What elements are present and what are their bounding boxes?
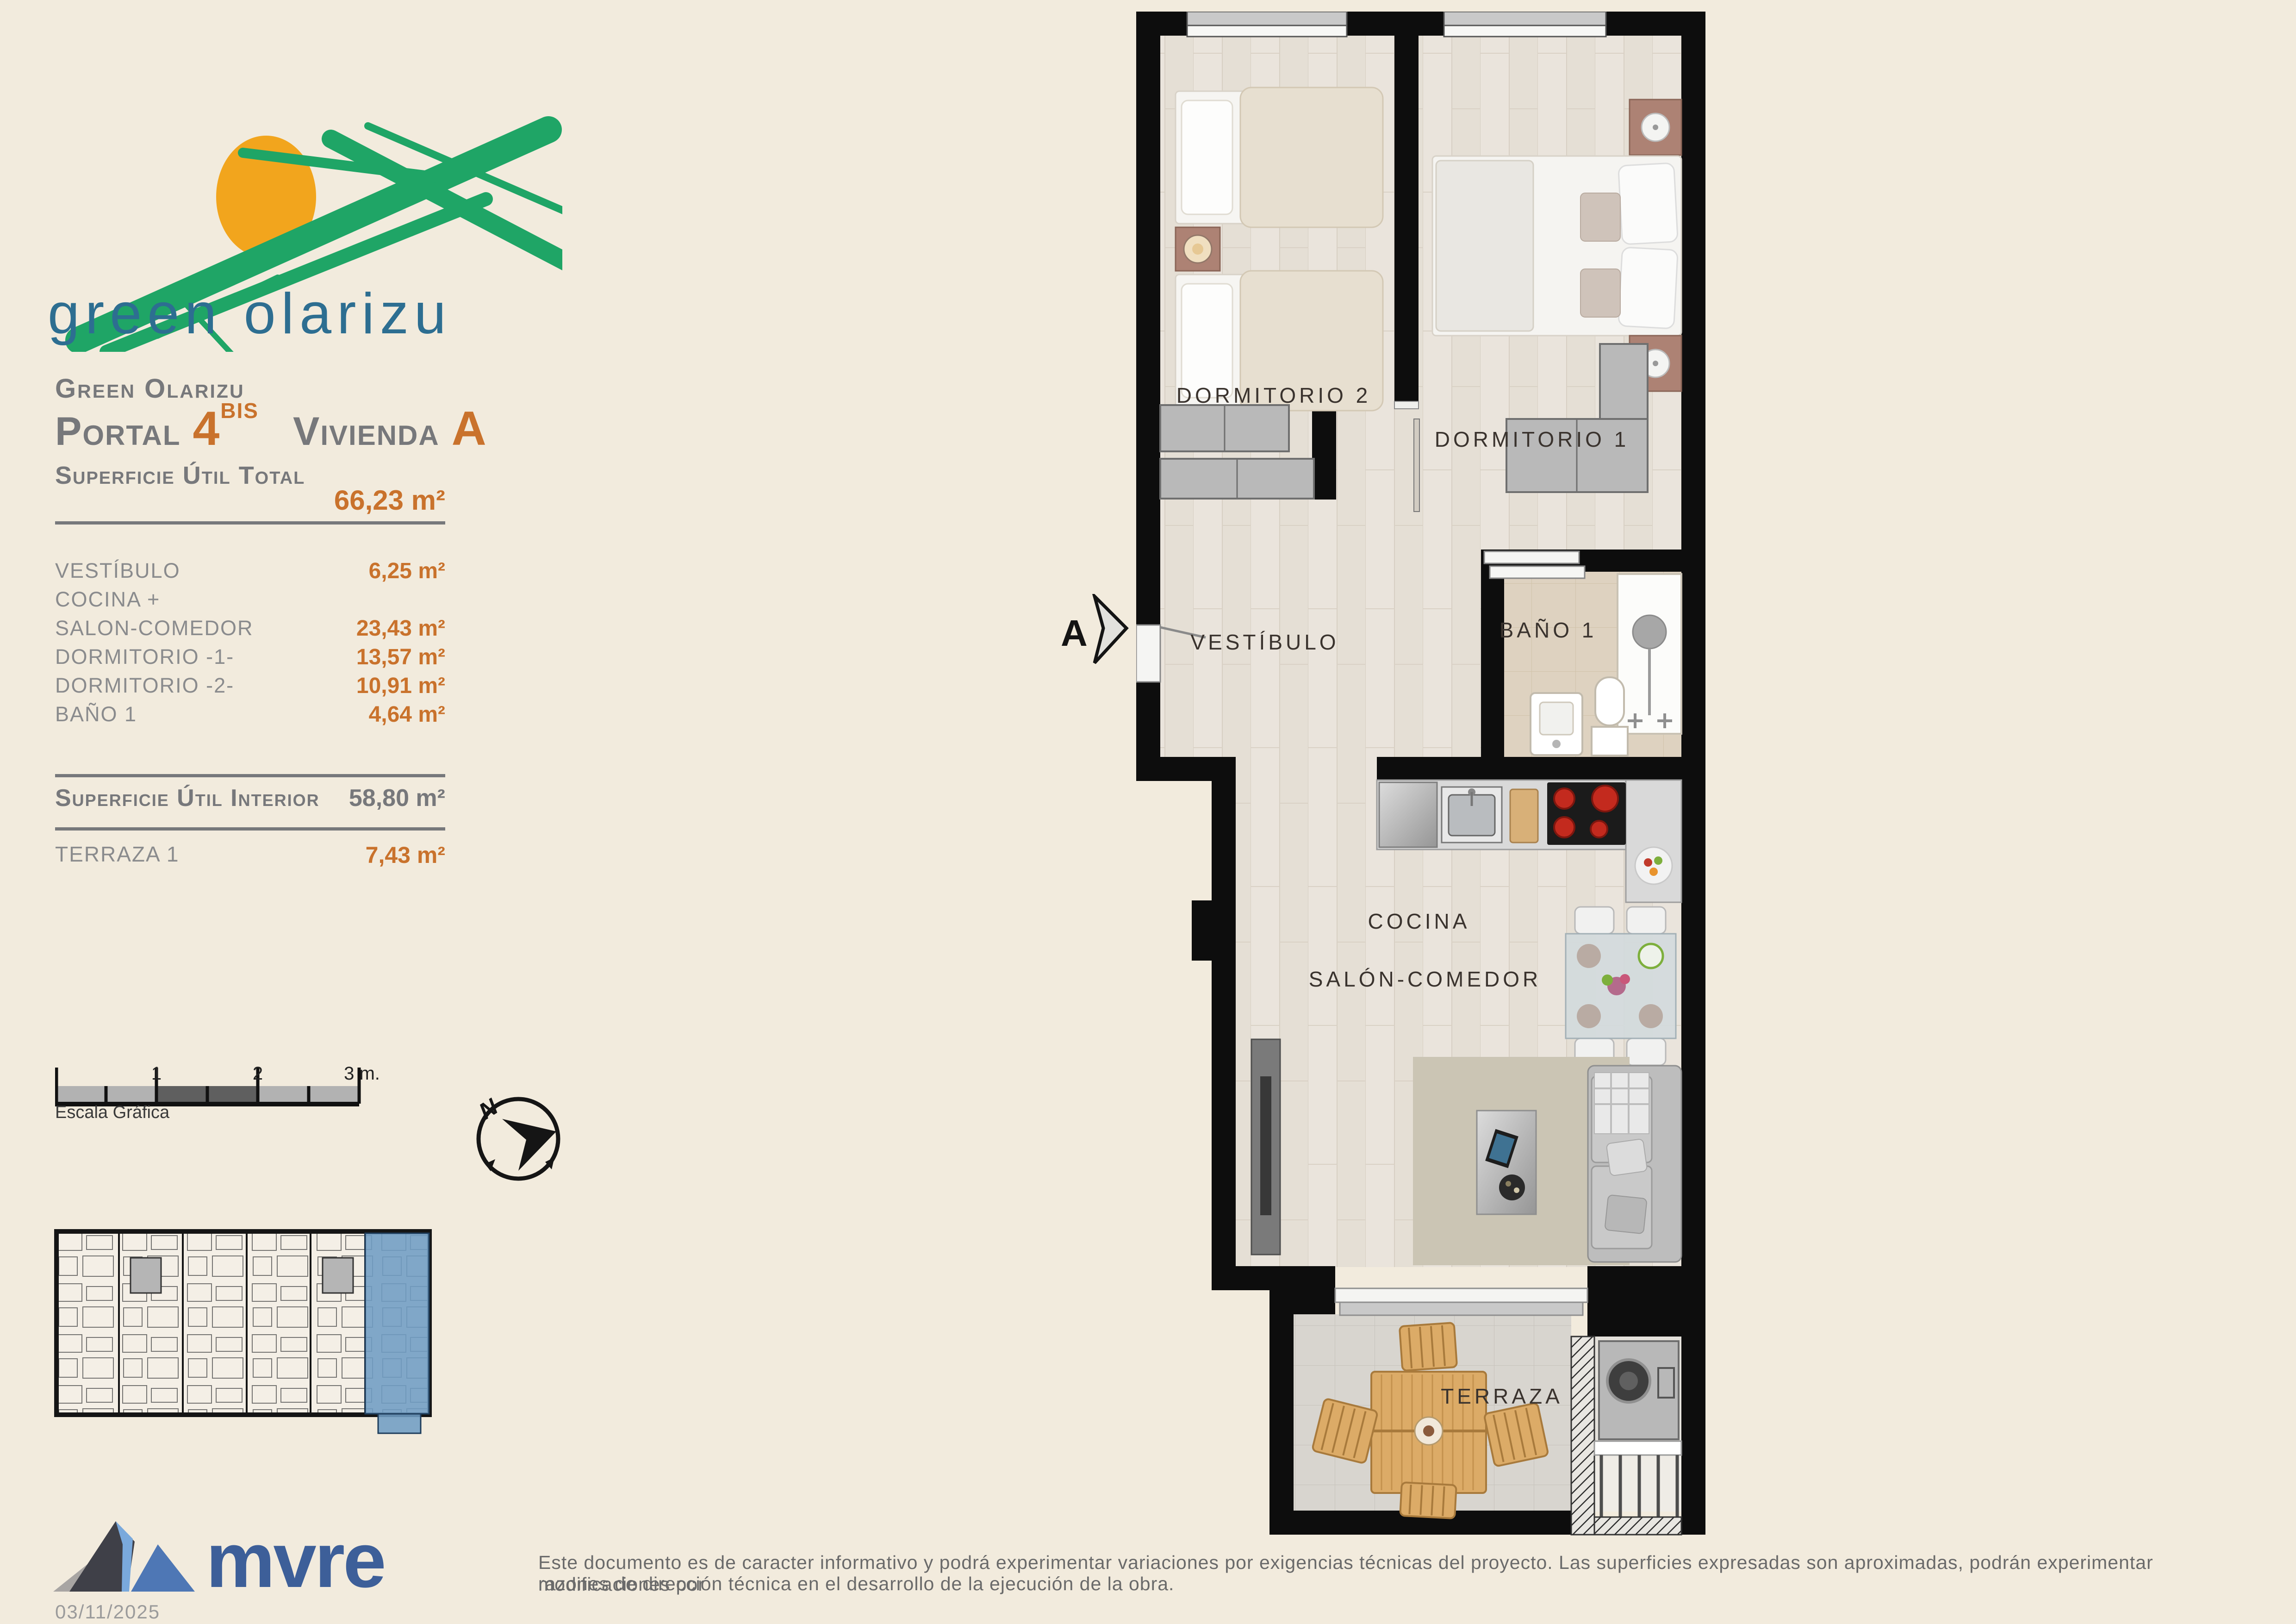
disclaimer-line-2: razones de dirección técnica en el desar… xyxy=(538,1573,2269,1595)
key-plan-lift-core xyxy=(131,1258,161,1293)
surface-row: DORMITORIO -1-13,57 m² xyxy=(55,643,445,671)
room-label-salon: SALÓN-COMEDOR xyxy=(1309,967,1541,991)
surface-row-label: DORMITORIO -1- xyxy=(55,645,234,669)
vivienda-letter: A xyxy=(452,402,487,456)
surface-row: VESTÍBULO6,25 m² xyxy=(55,556,445,585)
terraza-surface-row: TERRAZA 1 7,43 m² xyxy=(55,842,445,868)
dishwasher xyxy=(1379,782,1437,847)
nightstand xyxy=(1176,227,1220,271)
surface-list: VESTÍBULO6,25 m² COCINA + SALON-COMEDOR2… xyxy=(55,556,445,729)
coffee-table xyxy=(1477,1111,1536,1214)
surface-row-value: 4,64 m² xyxy=(369,702,445,727)
logo-wordmark: green olarizu xyxy=(48,282,452,346)
floorplan-document-page: green olarizu Green Olarizu Portal 4BISV… xyxy=(0,0,2296,1624)
apartment-floor-plan: DORMITORIO 2 DORMITORIO 1 VESTÍBULO BAÑO… xyxy=(1136,12,1705,1546)
portal-superscript: BIS xyxy=(220,399,259,423)
room-label-cocina: COCINA xyxy=(1368,909,1470,933)
balcony-shelf xyxy=(1594,1441,1681,1455)
interior-surface-row: Superficie Útil Interior 58,80 m² xyxy=(55,784,445,812)
mvre-wordmark: mvre xyxy=(206,1518,385,1596)
room-label-vestibulo: VESTÍBULO xyxy=(1190,630,1339,654)
surface-row-value: 13,57 m² xyxy=(356,644,445,670)
section-marker-letter: A xyxy=(1061,612,1088,655)
plaid-blanket xyxy=(1594,1073,1649,1134)
portal-label: Portal xyxy=(55,409,181,454)
surface-row-label: COCINA + xyxy=(55,587,160,612)
key-plan-lift-core xyxy=(323,1258,353,1293)
scale-caption: Escala Gráfica xyxy=(55,1103,169,1123)
single-bed xyxy=(1176,87,1383,227)
interior-surface-label: Superficie Útil Interior xyxy=(55,784,320,812)
tv-unit xyxy=(1251,1039,1280,1255)
room-label-dormitorio1: DORMITORIO 1 xyxy=(1435,427,1630,451)
shower xyxy=(1618,574,1681,734)
document-date: 03/11/2025 xyxy=(55,1601,160,1623)
kitchen-sink xyxy=(1442,787,1502,843)
room-label-terraza: TERRAZA xyxy=(1441,1384,1563,1408)
surface-row-value: 10,91 m² xyxy=(356,673,445,699)
outside-mask xyxy=(1136,781,1212,1290)
interior-surface-value: 58,80 m² xyxy=(349,784,445,812)
mvre-logo: mvre xyxy=(53,1518,405,1596)
green-olarizu-logo: green olarizu xyxy=(44,83,562,352)
surface-row-label: SALON-COMEDOR xyxy=(55,616,254,640)
terrace-door xyxy=(1335,1288,1587,1315)
room-label-dormitorio2: DORMITORIO 2 xyxy=(1176,383,1371,407)
terraza-surface-label: TERRAZA 1 xyxy=(55,842,180,868)
compass-north-letter: N xyxy=(474,1093,503,1124)
surface-row: BAÑO 14,64 m² xyxy=(55,700,445,729)
vivienda-label: Vivienda xyxy=(293,409,440,454)
surface-row-label: BAÑO 1 xyxy=(55,702,137,726)
surface-row-label: VESTÍBULO xyxy=(55,559,180,583)
north-compass-icon: N xyxy=(472,1093,565,1186)
surface-row: COCINA + xyxy=(55,585,445,614)
double-bed xyxy=(1432,156,1681,336)
washing-machine xyxy=(1599,1341,1679,1439)
key-plan xyxy=(54,1229,434,1440)
divider-line xyxy=(55,774,445,777)
terraza-surface-value: 7,43 m² xyxy=(366,842,445,868)
surface-row: DORMITORIO -2-10,91 m² xyxy=(55,671,445,700)
surface-row: SALON-COMEDOR23,43 m² xyxy=(55,614,445,643)
scale-tick-1: 1 xyxy=(151,1063,162,1084)
portal-number: 4 xyxy=(193,402,220,456)
divider-line xyxy=(55,521,445,525)
scale-segments xyxy=(55,1068,359,1106)
mvre-mountain-blue xyxy=(131,1544,195,1592)
scale-tick-2: 2 xyxy=(253,1063,263,1084)
surface-row-label: DORMITORIO -2- xyxy=(55,674,234,698)
hatched-wall xyxy=(1571,1337,1594,1535)
sofa xyxy=(1588,1066,1681,1262)
total-surface-value: 66,23 m² xyxy=(55,484,445,516)
surface-row-value: 23,43 m² xyxy=(356,616,445,641)
nightstand xyxy=(1630,100,1681,155)
room-label-bano1: BAÑO 1 xyxy=(1500,618,1597,642)
key-plan-highlighted-terrace xyxy=(378,1414,421,1433)
section-marker-arrow-icon xyxy=(1092,594,1130,665)
fruit-plate xyxy=(1635,847,1672,884)
scale-tick-3: 3 m. xyxy=(344,1063,380,1084)
bathroom-sink xyxy=(1531,693,1582,755)
cutting-board xyxy=(1510,789,1538,843)
surface-row-value: 6,25 m² xyxy=(369,558,445,584)
key-plan-highlighted-unit xyxy=(365,1233,429,1414)
portal-vivienda-line: Portal 4BISVivienda A xyxy=(55,398,487,456)
balcony-edge xyxy=(1594,1517,1681,1535)
toilet xyxy=(1592,677,1628,756)
cooktop xyxy=(1547,782,1626,845)
divider-line xyxy=(55,827,445,831)
